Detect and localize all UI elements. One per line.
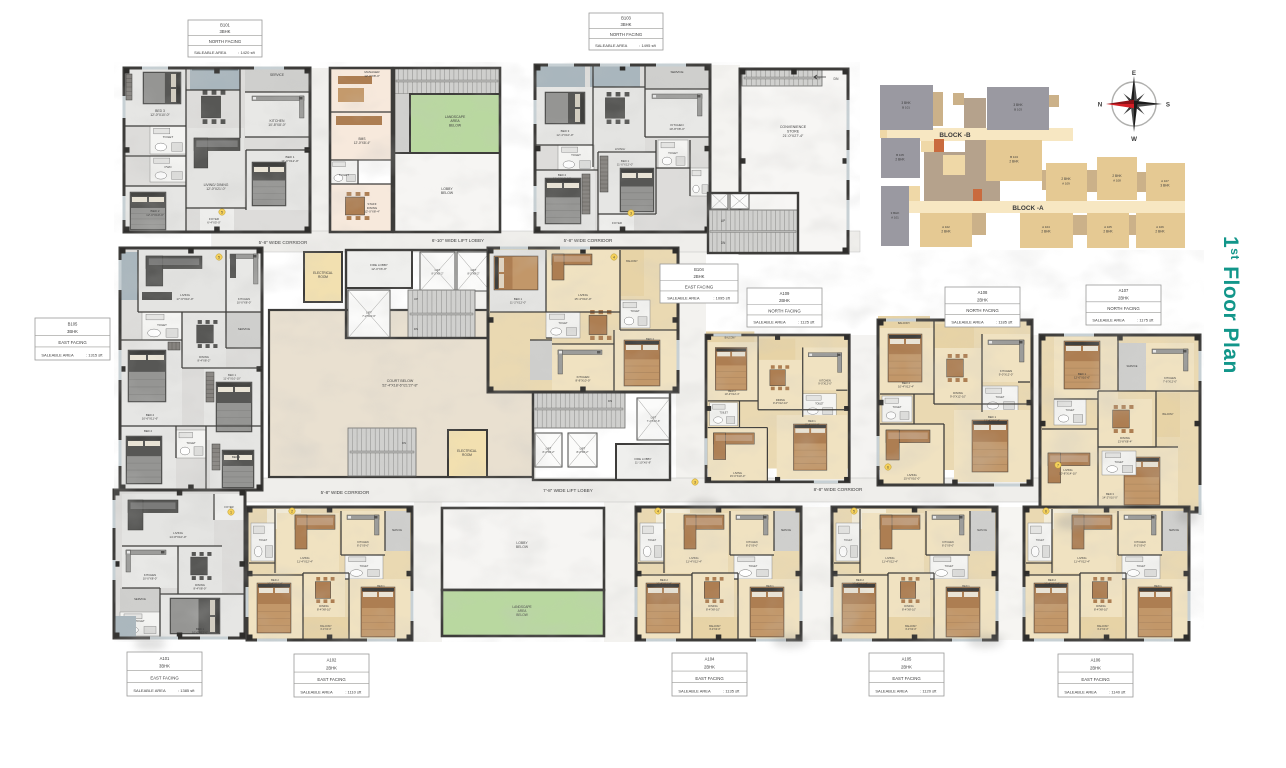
svg-text:5: 5 xyxy=(221,210,223,214)
svg-text:: 1385 sft: : 1385 sft xyxy=(178,688,195,693)
svg-text:6: 6 xyxy=(887,465,889,469)
svg-text:: 1120 sft: : 1120 sft xyxy=(920,688,937,693)
svg-text:2 BHK: 2 BHK xyxy=(1061,177,1071,181)
svg-text:2 BHK: 2 BHK xyxy=(941,230,951,234)
svg-text:EAST FACING: EAST FACING xyxy=(317,677,346,682)
svg-text:BLOCK -A: BLOCK -A xyxy=(1012,205,1044,212)
svg-text:SALEABLE AREA: SALEABLE AREA xyxy=(875,688,908,693)
svg-text:S: S xyxy=(1166,102,1170,109)
svg-text:A 104: A 104 xyxy=(1042,225,1050,229)
svg-text:2 BHK: 2 BHK xyxy=(895,158,905,162)
svg-text:2: 2 xyxy=(291,509,293,513)
svg-text:3: 3 xyxy=(694,480,696,484)
svg-text:: 1420 sft: : 1420 sft xyxy=(238,50,255,55)
svg-text:: 1315 sft: : 1315 sft xyxy=(86,352,103,357)
svg-text:B 105: B 105 xyxy=(896,153,904,157)
svg-text:A102: A102 xyxy=(327,658,337,663)
svg-text:A106: A106 xyxy=(1091,658,1101,663)
svg-text:EAST FACING: EAST FACING xyxy=(150,675,179,680)
svg-text:A 109: A 109 xyxy=(1062,182,1070,186)
svg-text:2 BHK: 2 BHK xyxy=(1103,230,1113,234)
svg-text:NORTH FACING: NORTH FACING xyxy=(768,308,801,313)
svg-text:B 101: B 101 xyxy=(902,106,910,110)
svg-text:A 106: A 106 xyxy=(1156,225,1164,229)
svg-text:EAST FACING: EAST FACING xyxy=(58,340,87,345)
svg-text:: 1135 sft: : 1135 sft xyxy=(723,688,740,693)
svg-text:SALEABLE AREA: SALEABLE AREA xyxy=(300,689,333,694)
svg-text:2 BHK: 2 BHK xyxy=(1041,230,1051,234)
svg-text:E: E xyxy=(1132,70,1136,77)
svg-text:B 104: B 104 xyxy=(1010,155,1018,159)
svg-text:5: 5 xyxy=(218,255,220,259)
svg-text:A 102: A 102 xyxy=(942,225,950,229)
svg-text:SALEABLE AREA: SALEABLE AREA xyxy=(667,296,700,301)
svg-text:2BHK: 2BHK xyxy=(1118,295,1129,300)
svg-text:EAST FACING: EAST FACING xyxy=(695,676,724,681)
svg-text:3BHK: 3BHK xyxy=(159,664,170,669)
svg-text:3BHK: 3BHK xyxy=(621,22,632,27)
svg-text:: 1095 sft: : 1095 sft xyxy=(713,296,730,301)
svg-text:BLOCK -B: BLOCK -B xyxy=(939,132,971,139)
svg-text:: 1140 sft: : 1140 sft xyxy=(1109,689,1126,694)
svg-text:3 BHK: 3 BHK xyxy=(901,101,911,105)
svg-text:W: W xyxy=(1131,136,1137,143)
svg-text:SALEABLE AREA: SALEABLE AREA xyxy=(595,43,628,48)
svg-text:N: N xyxy=(1098,102,1103,109)
svg-text:2BHK: 2BHK xyxy=(901,664,912,669)
svg-text:2BHK: 2BHK xyxy=(977,297,988,302)
svg-text:EAST FACING: EAST FACING xyxy=(1081,677,1110,682)
svg-text:B101: B101 xyxy=(220,23,230,28)
svg-text:4: 4 xyxy=(613,255,615,259)
svg-text:2BHK: 2BHK xyxy=(326,665,337,670)
svg-text:A101: A101 xyxy=(160,656,170,661)
svg-text:SALEABLE AREA: SALEABLE AREA xyxy=(678,688,711,693)
svg-text:A 105: A 105 xyxy=(1104,225,1112,229)
svg-text:2BHK: 2BHK xyxy=(704,664,715,669)
svg-text:A107: A107 xyxy=(1119,288,1129,293)
svg-text:3 BHK: 3 BHK xyxy=(1160,184,1170,188)
svg-text:SALEABLE AREA: SALEABLE AREA xyxy=(753,320,786,325)
svg-text:: 1125 sft: : 1125 sft xyxy=(798,320,815,325)
svg-text:A 108: A 108 xyxy=(1113,179,1121,183)
svg-text:A109: A109 xyxy=(780,291,790,296)
svg-text:EAST FACING: EAST FACING xyxy=(685,284,714,289)
svg-text:A 101: A 101 xyxy=(891,216,899,220)
svg-text:5: 5 xyxy=(853,509,855,513)
svg-text:3: 3 xyxy=(630,211,632,215)
svg-text:: 1495 sft: : 1495 sft xyxy=(639,43,656,48)
svg-text:3 BHK: 3 BHK xyxy=(891,211,900,215)
svg-text:A108: A108 xyxy=(978,290,988,295)
svg-text:3BHK: 3BHK xyxy=(67,329,78,334)
svg-text:SALEABLE AREA: SALEABLE AREA xyxy=(41,352,74,357)
svg-text:NORTH FACING: NORTH FACING xyxy=(209,39,242,44)
svg-text:SALEABLE AREA: SALEABLE AREA xyxy=(1064,689,1097,694)
svg-text:SALEABLE AREA: SALEABLE AREA xyxy=(133,688,166,693)
svg-text:NORTH FACING: NORTH FACING xyxy=(610,32,643,37)
svg-text:B103: B103 xyxy=(621,16,631,21)
svg-text:: 1110 sft: : 1110 sft xyxy=(345,689,362,694)
svg-text:SALEABLE AREA: SALEABLE AREA xyxy=(951,320,984,325)
svg-text:2 BHK: 2 BHK xyxy=(1155,230,1165,234)
svg-text:4: 4 xyxy=(657,509,659,513)
svg-text:B 103: B 103 xyxy=(1014,108,1022,112)
svg-text:6: 6 xyxy=(1045,509,1047,513)
svg-text:7: 7 xyxy=(1057,463,1059,467)
svg-text:3 BHK: 3 BHK xyxy=(1013,103,1023,107)
svg-text:A105: A105 xyxy=(902,657,912,662)
svg-text:: 1185 sft: : 1185 sft xyxy=(996,320,1013,325)
svg-text:2 BHK: 2 BHK xyxy=(1112,174,1122,178)
svg-text:B105: B105 xyxy=(68,321,78,326)
svg-text:NORTH FACING: NORTH FACING xyxy=(966,308,999,313)
svg-text:2BHK: 2BHK xyxy=(1090,665,1101,670)
svg-text:SALEABLE AREA: SALEABLE AREA xyxy=(1092,318,1125,323)
svg-text:EAST FACING: EAST FACING xyxy=(892,676,921,681)
svg-text:NORTH FACING: NORTH FACING xyxy=(1107,306,1140,311)
svg-text:B104: B104 xyxy=(694,267,704,272)
svg-text:1: 1 xyxy=(230,510,232,514)
svg-text:A 107: A 107 xyxy=(1161,179,1169,183)
svg-text:: 1175 sft: : 1175 sft xyxy=(1137,318,1154,323)
svg-text:2 BHK: 2 BHK xyxy=(1009,160,1019,164)
svg-text:3BHK: 3BHK xyxy=(220,29,231,34)
svg-text:SALEABLE AREA: SALEABLE AREA xyxy=(194,50,227,55)
svg-text:2BHK: 2BHK xyxy=(694,274,705,279)
svg-text:2BHK: 2BHK xyxy=(779,298,790,303)
svg-text:A104: A104 xyxy=(705,657,715,662)
